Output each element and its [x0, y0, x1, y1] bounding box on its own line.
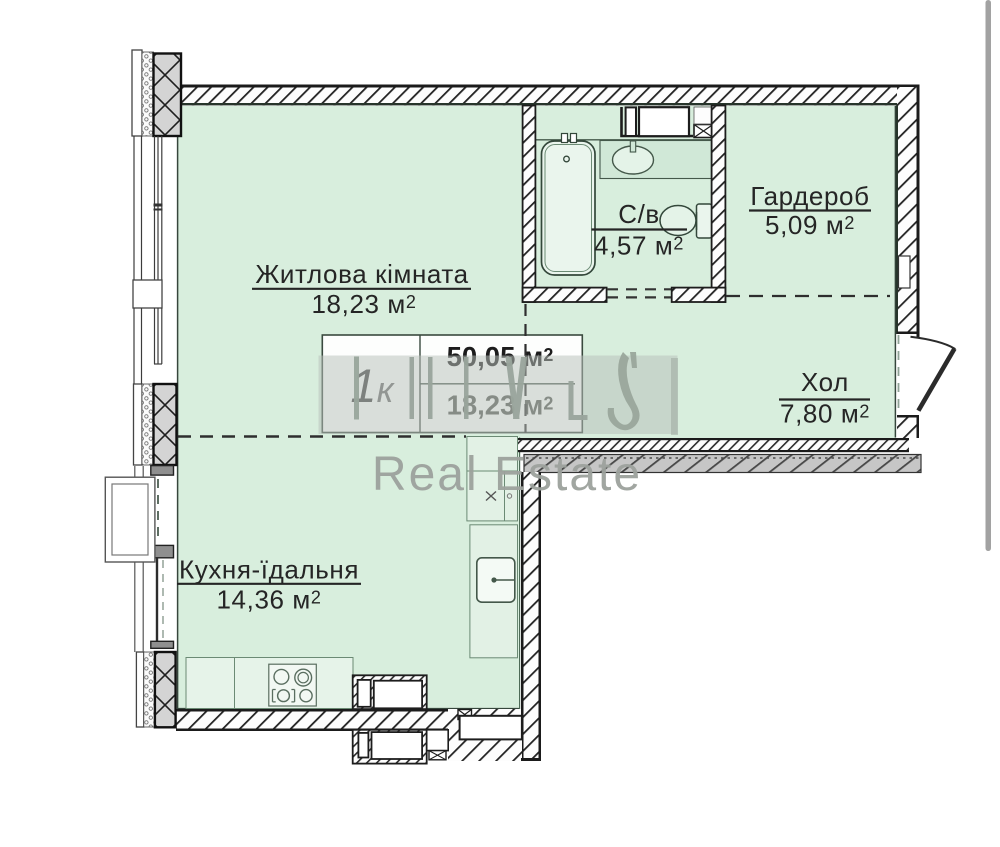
svg-text:18,23 м2: 18,23 м2 — [312, 289, 417, 319]
svg-text:5,09 м2: 5,09 м2 — [765, 210, 855, 240]
svg-text:Кухня-їдальня: Кухня-їдальня — [179, 555, 359, 585]
svg-text:Гардероб: Гардероб — [750, 181, 869, 211]
svg-text:Хол: Хол — [801, 367, 849, 397]
svg-text:С/в: С/в — [618, 199, 660, 229]
svg-text:7,80 м2: 7,80 м2 — [780, 399, 870, 429]
svg-text:Real Estate: Real Estate — [372, 448, 642, 501]
svg-text:14,36 м2: 14,36 м2 — [217, 585, 322, 615]
svg-text:4,57 м2: 4,57 м2 — [594, 231, 684, 261]
svg-text:Житлова кімната: Житлова кімната — [255, 259, 468, 289]
